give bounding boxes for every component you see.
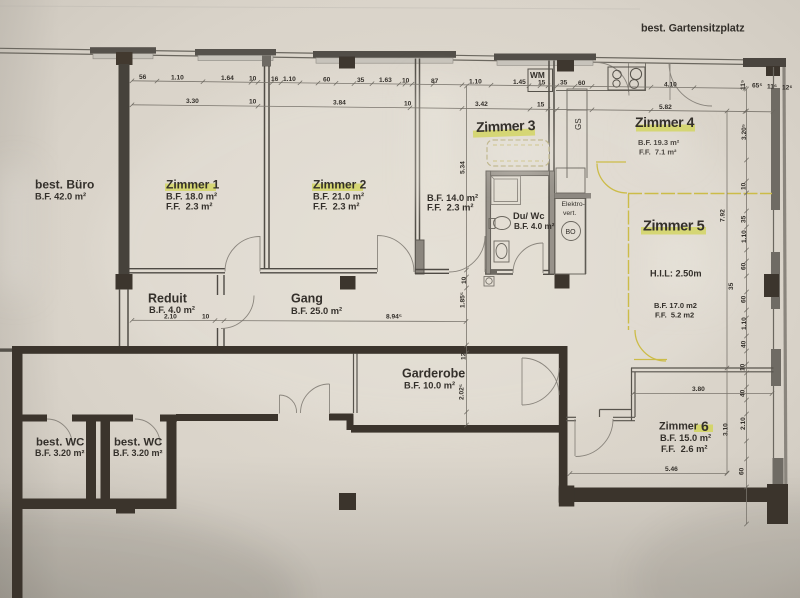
svg-text:3.20⁵: 3.20⁵ [741,124,748,140]
svg-text:35: 35 [357,77,365,84]
svg-text:6: 6 [701,418,709,434]
svg-text:10: 10 [249,76,257,83]
svg-text:10: 10 [741,182,748,190]
svg-text:H.I.L: 2.50m: H.I.L: 2.50m [650,269,702,279]
svg-text:1.45: 1.45 [513,79,526,86]
svg-text:B.F. 10.0 m²: B.F. 10.0 m² [404,381,455,391]
svg-text:11⁶: 11⁶ [767,84,777,91]
svg-text:56: 56 [139,74,147,81]
svg-text:Elektro-: Elektro- [562,201,585,208]
svg-text:Zimmer: Zimmer [659,421,699,433]
svg-text:1.10: 1.10 [469,79,482,86]
svg-text:B.F. 18.0 m²: B.F. 18.0 m² [166,192,217,202]
svg-text:35: 35 [560,80,568,87]
svg-text:B.F. 3.20 m²: B.F. 3.20 m² [35,448,85,458]
svg-text:GS: GS [574,118,583,130]
svg-text:1.64: 1.64 [221,75,234,82]
svg-text:Du/ Wc: Du/ Wc [513,211,545,221]
svg-text:best. WC: best. WC [36,437,84,449]
svg-text:35: 35 [728,282,735,290]
svg-text:60: 60 [741,295,748,303]
svg-text:B.F. 15.0 m²: B.F. 15.0 m² [660,433,711,443]
svg-text:3.30: 3.30 [186,98,199,105]
svg-text:F.F. 2.3 m²: F.F. 2.3 m² [427,203,474,213]
svg-text:2.10: 2.10 [740,417,747,430]
svg-text:12⁶: 12⁶ [782,85,792,92]
svg-text:best. WC: best. WC [114,437,162,449]
svg-text:F.F. 7.1 m²: F.F. 7.1 m² [639,148,677,157]
svg-text:10: 10 [202,314,210,321]
svg-text:8.94⁵: 8.94⁵ [386,314,402,321]
svg-text:F.F. 2.3 m²: F.F. 2.3 m² [313,202,360,212]
svg-text:Reduit: Reduit [148,292,188,306]
svg-text:1.10: 1.10 [741,317,748,330]
svg-text:B.F. 14.0 m²: B.F. 14.0 m² [427,193,478,203]
svg-text:10: 10 [249,99,257,106]
svg-text:F.F. 2.6 m²: F.F. 2.6 m² [661,444,708,454]
svg-text:Zimmer 1: Zimmer 1 [166,178,220,192]
svg-text:B.F. 25.0 m²: B.F. 25.0 m² [291,306,342,316]
svg-text:1.85⁵: 1.85⁵ [460,292,467,308]
svg-text:60: 60 [578,80,586,87]
svg-text:1.63: 1.63 [379,77,392,84]
svg-text:Zimmer 2: Zimmer 2 [313,178,367,192]
svg-text:3.42: 3.42 [475,101,488,108]
svg-text:Garderobe: Garderobe [402,367,465,381]
svg-text:B.F. 4.0 m²: B.F. 4.0 m² [149,305,195,315]
svg-text:10: 10 [404,101,412,108]
svg-text:5.82: 5.82 [659,104,672,111]
svg-text:B.F. 21.0 m²: B.F. 21.0 m² [313,192,364,202]
svg-text:Zimmer 4: Zimmer 4 [635,114,695,130]
svg-text:3.84: 3.84 [333,100,346,107]
svg-text:40: 40 [741,340,748,348]
svg-text:60: 60 [741,262,748,270]
svg-text:15: 15 [538,80,546,87]
svg-text:B.F. 42.0 m²: B.F. 42.0 m² [35,192,86,202]
svg-text:F.F. 2.3 m²: F.F. 2.3 m² [166,202,213,212]
svg-text:35: 35 [741,215,748,223]
svg-text:15: 15 [537,102,545,109]
svg-text:3.80: 3.80 [692,386,705,393]
svg-text:10: 10 [740,363,747,371]
svg-text:3.10: 3.10 [723,423,730,436]
svg-text:60: 60 [739,467,746,475]
svg-text:Zimmer 3: Zimmer 3 [476,117,536,135]
svg-text:11⁵: 11⁵ [740,80,747,90]
svg-text:1.10: 1.10 [171,75,184,82]
svg-text:Zimmer 5: Zimmer 5 [643,219,705,235]
svg-text:1.10: 1.10 [741,230,748,243]
svg-text:best. Gartensitzplatz: best. Gartensitzplatz [641,23,745,35]
svg-text:F.F. 5.2 m2: F.F. 5.2 m2 [655,311,694,320]
svg-text:BO: BO [566,229,577,236]
svg-text:4.10: 4.10 [664,82,677,89]
svg-text:best. Büro: best. Büro [35,178,94,192]
svg-text:1.10: 1.10 [283,76,296,83]
svg-text:WM: WM [530,70,545,80]
svg-text:10: 10 [461,276,468,284]
svg-text:B.F. 17.0 m2: B.F. 17.0 m2 [654,301,697,310]
svg-text:87: 87 [431,78,439,85]
svg-text:2.02⁵: 2.02⁵ [459,384,466,400]
svg-text:B.F. 19.3 m²: B.F. 19.3 m² [638,138,680,147]
svg-text:B.F. 4.0 m²: B.F. 4.0 m² [514,222,555,231]
svg-text:B.F. 3.20 m²: B.F. 3.20 m² [113,448,163,458]
svg-text:5.34: 5.34 [460,161,467,174]
svg-text:Gang: Gang [291,292,323,306]
svg-text:5.46: 5.46 [665,466,678,473]
svg-text:60: 60 [323,77,331,84]
svg-text:vert.: vert. [563,210,576,217]
svg-text:65⁵: 65⁵ [752,83,762,90]
svg-text:7.92: 7.92 [720,209,727,222]
